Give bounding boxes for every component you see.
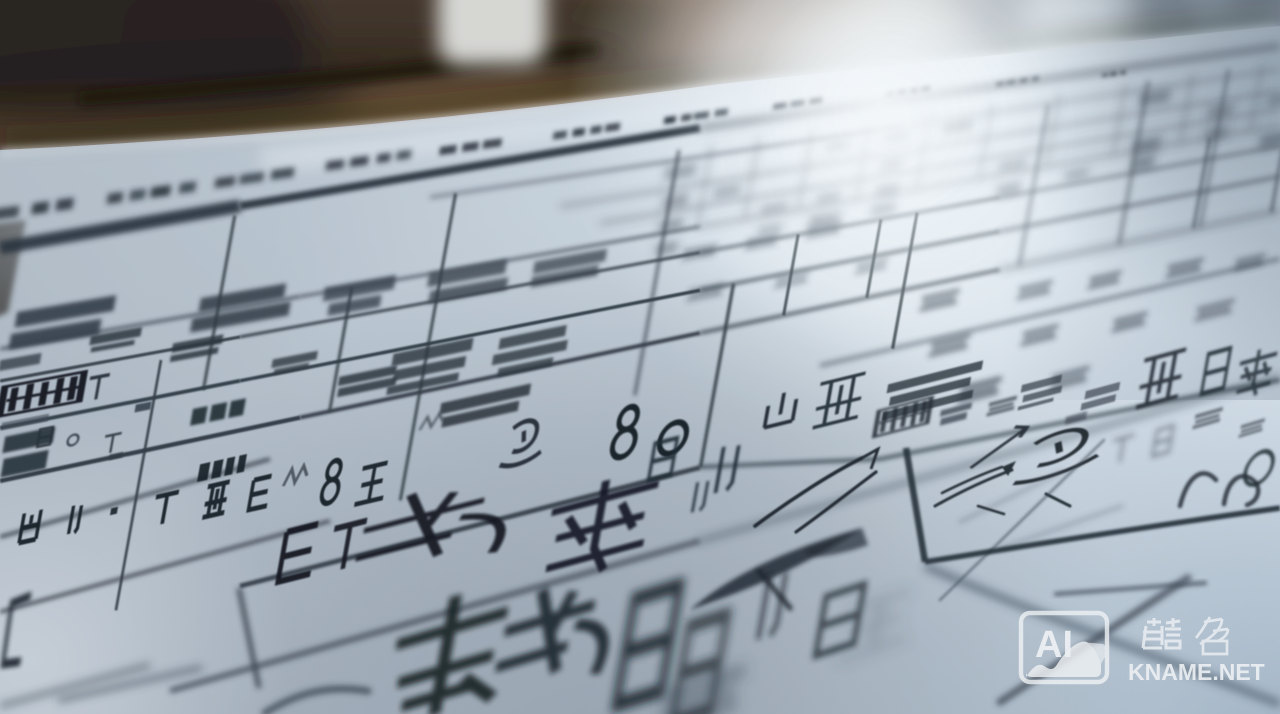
svg-text:AI: AI (1035, 624, 1073, 666)
svg-text:KNAME.NET: KNAME.NET (1128, 659, 1265, 685)
